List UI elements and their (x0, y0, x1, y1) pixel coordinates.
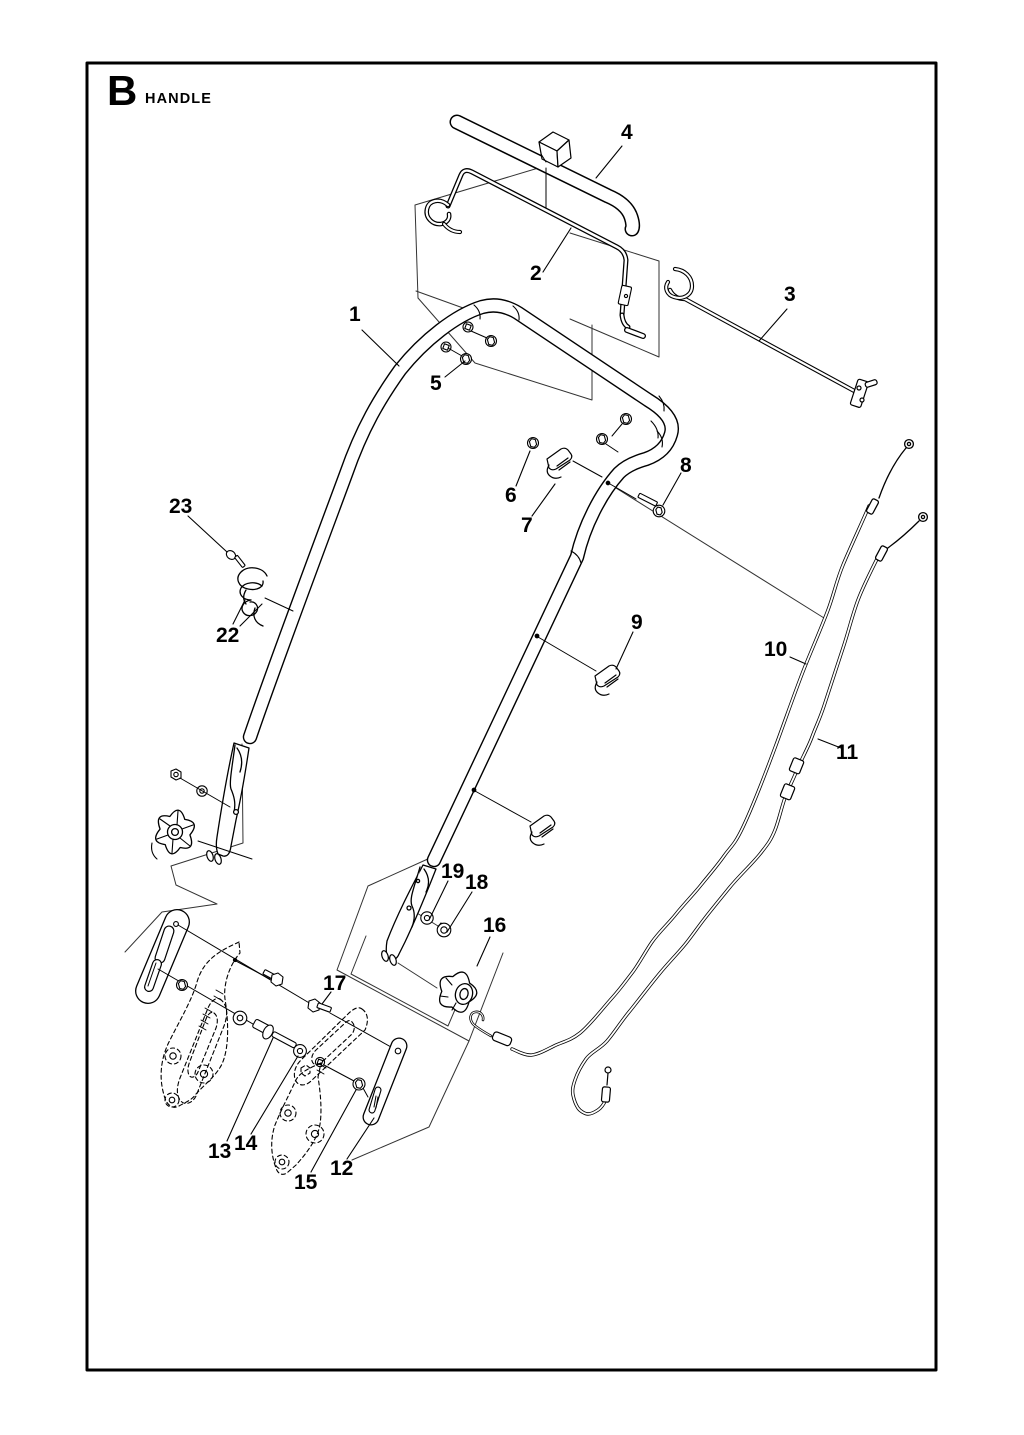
svg-text:5: 5 (430, 372, 442, 395)
svg-text:14: 14 (234, 1132, 258, 1155)
svg-text:HANDLE: HANDLE (145, 91, 212, 107)
svg-text:8: 8 (680, 454, 692, 477)
svg-text:18: 18 (465, 871, 489, 894)
svg-text:2: 2 (530, 262, 542, 285)
svg-text:17: 17 (323, 972, 346, 995)
svg-text:23: 23 (169, 495, 192, 518)
svg-text:1: 1 (349, 303, 361, 326)
svg-text:6: 6 (505, 484, 517, 507)
svg-text:10: 10 (764, 638, 787, 661)
svg-text:13: 13 (208, 1140, 231, 1163)
svg-text:12: 12 (330, 1157, 353, 1180)
svg-text:22: 22 (216, 624, 239, 647)
svg-text:11: 11 (836, 741, 859, 764)
svg-text:4: 4 (621, 121, 633, 144)
svg-text:9: 9 (631, 611, 643, 634)
svg-text:B: B (107, 67, 137, 114)
svg-text:16: 16 (483, 914, 506, 937)
svg-text:3: 3 (784, 283, 796, 306)
svg-text:19: 19 (441, 860, 464, 883)
svg-text:15: 15 (294, 1171, 318, 1194)
svg-text:7: 7 (521, 514, 533, 537)
